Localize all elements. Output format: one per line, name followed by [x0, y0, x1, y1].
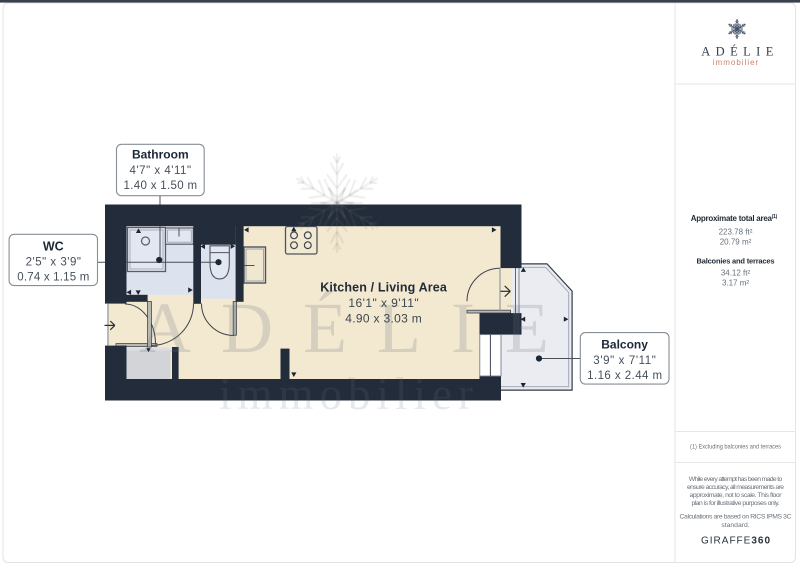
svg-text:0.74 x 1.15 m: 0.74 x 1.15 m — [17, 272, 89, 284]
svg-text:ensure accuracy, all measureme: ensure accuracy, all measurements are — [687, 484, 784, 491]
svg-text:standard.: standard. — [721, 522, 749, 529]
svg-text:plan is for illustrative purpo: plan is for illustrative purposes only. — [692, 500, 780, 507]
svg-text:16'1" x 9'11": 16'1" x 9'11" — [348, 296, 418, 310]
svg-text:223.78 ft²: 223.78 ft² — [719, 228, 753, 237]
svg-text:approximate, not to scale. Thi: approximate, not to scale. This floor — [690, 492, 783, 499]
svg-text:Bathroom: Bathroom — [132, 147, 189, 161]
svg-text:WC: WC — [43, 239, 64, 253]
svg-text:immobilier: immobilier — [219, 369, 479, 419]
svg-text:2'5" x 3'9": 2'5" x 3'9" — [26, 256, 81, 268]
svg-text:Approximate total area(1): Approximate total area(1) — [691, 214, 778, 223]
svg-text:4.90 x 3.03 m: 4.90 x 3.03 m — [345, 311, 422, 325]
svg-text:20.79 m²: 20.79 m² — [720, 238, 752, 247]
svg-text:34.12 ft²: 34.12 ft² — [721, 269, 751, 278]
svg-text:Balcony: Balcony — [601, 338, 648, 352]
svg-text:Kitchen / Living Area: Kitchen / Living Area — [320, 280, 448, 294]
svg-text:4'7" x 4'11": 4'7" x 4'11" — [130, 165, 192, 177]
svg-text:GIRAFFE360: GIRAFFE360 — [701, 536, 770, 547]
svg-text:(1) Excluding balconies and te: (1) Excluding balconies and terraces — [690, 444, 781, 451]
svg-text:ADÉLIE: ADÉLIE — [701, 45, 779, 59]
svg-text:3'9" x 7'11": 3'9" x 7'11" — [593, 355, 656, 367]
svg-text:immobilier: immobilier — [713, 58, 759, 67]
svg-text:Balconies and terraces: Balconies and terraces — [697, 257, 775, 266]
svg-text:1.16 x 2.44 m: 1.16 x 2.44 m — [587, 370, 662, 382]
svg-text:1.40 x 1.50 m: 1.40 x 1.50 m — [124, 180, 198, 192]
svg-text:3.17 m²: 3.17 m² — [722, 279, 749, 288]
svg-text:While every attempt has been m: While every attempt has been made to — [689, 476, 783, 483]
svg-text:Calculations are based on RICS: Calculations are based on RICS IPMS 3C — [680, 514, 792, 521]
